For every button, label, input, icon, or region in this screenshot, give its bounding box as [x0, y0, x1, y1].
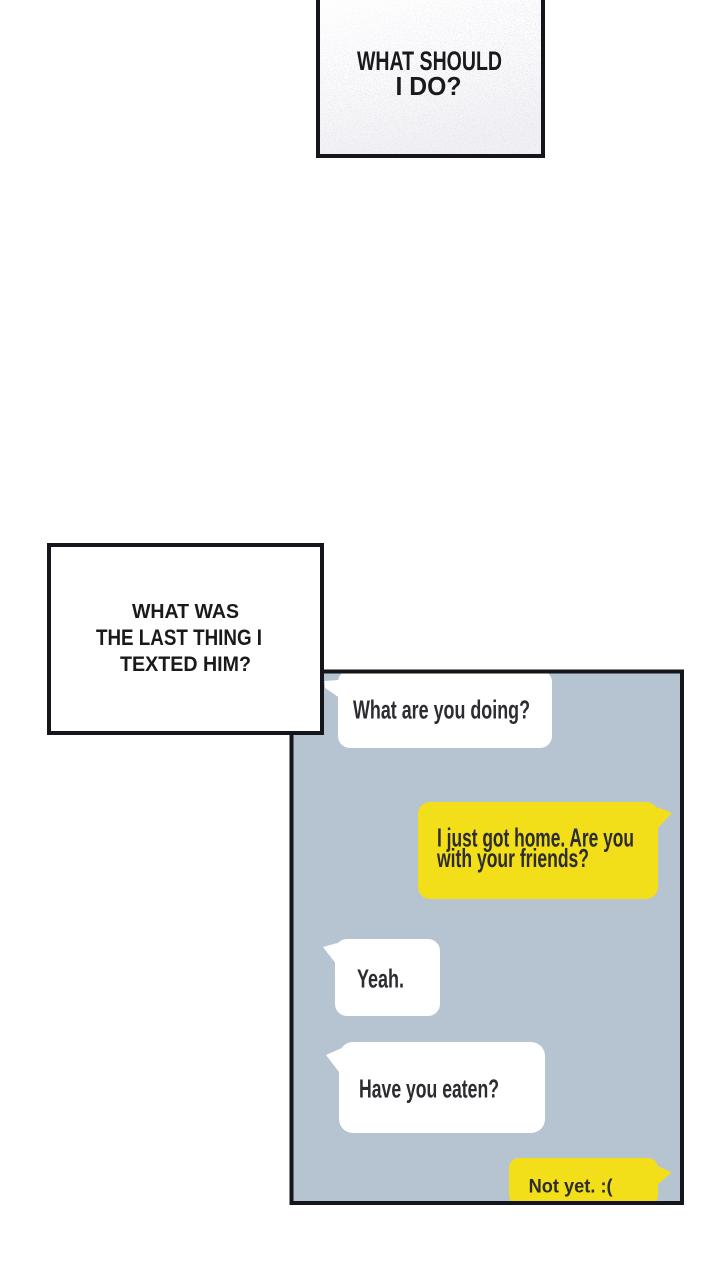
- svg-text:Have you eaten?: Have you eaten?: [359, 1074, 499, 1104]
- svg-text:with your friends?: with your friends?: [436, 843, 589, 873]
- svg-text:THE LAST THING I: THE LAST THING I: [96, 625, 262, 650]
- svg-text:What are you doing?: What are you doing?: [353, 695, 530, 725]
- svg-text:Not yet. :(: Not yet. :(: [529, 1176, 613, 1198]
- svg-text:Yeah.: Yeah.: [357, 964, 404, 994]
- svg-text:WHAT WAS: WHAT WAS: [132, 600, 239, 623]
- svg-text:TEXTED HIM?: TEXTED HIM?: [120, 653, 251, 676]
- svg-text:I DO?: I DO?: [396, 71, 462, 101]
